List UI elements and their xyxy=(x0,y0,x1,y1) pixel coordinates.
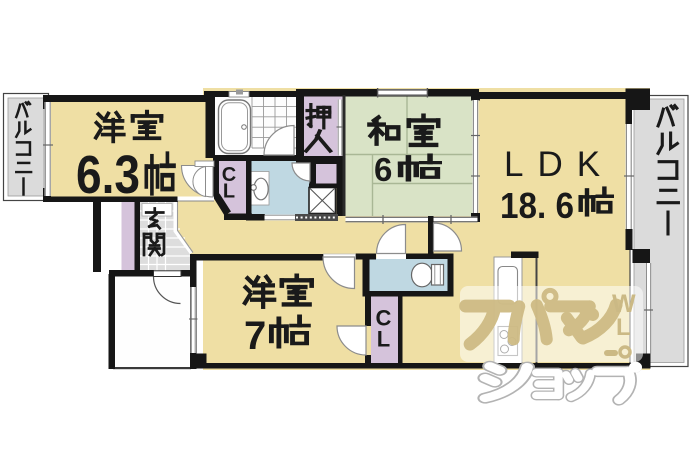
svg-text:L: L xyxy=(223,181,235,203)
svg-text:L: L xyxy=(377,327,390,352)
svg-text:18. 6: 18. 6 xyxy=(500,185,574,226)
svg-text:L: L xyxy=(616,314,631,341)
svg-text:6.3: 6.3 xyxy=(76,145,140,205)
svg-text:7: 7 xyxy=(244,314,266,358)
svg-text:LDK: LDK xyxy=(504,145,614,184)
svg-text:6: 6 xyxy=(374,151,392,188)
